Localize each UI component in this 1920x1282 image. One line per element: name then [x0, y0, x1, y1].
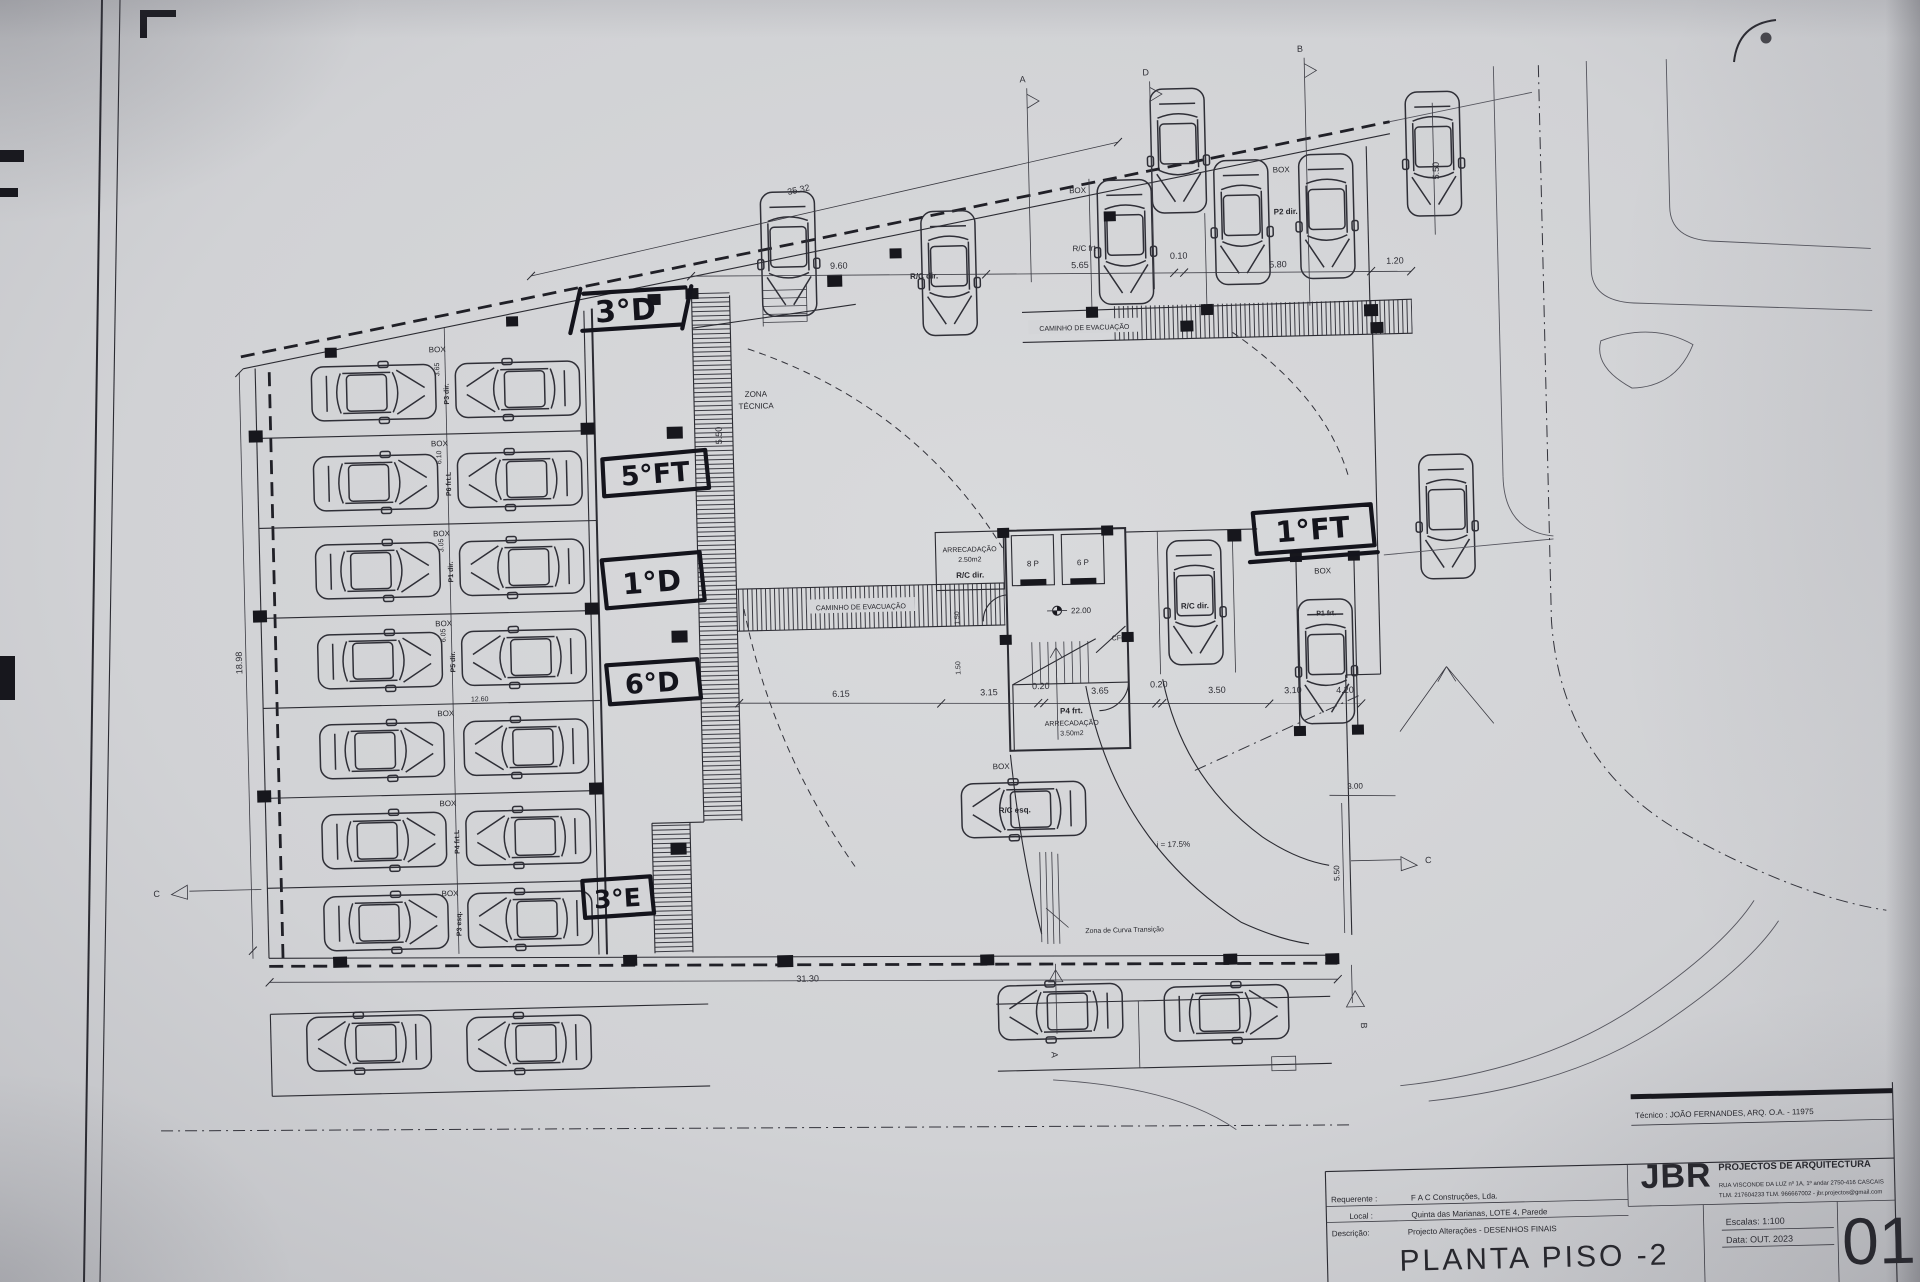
parking-plate: P1 dir.	[448, 561, 455, 582]
parking-plate: P2 dir.	[1274, 207, 1298, 217]
level-label: 22.00	[1071, 606, 1092, 615]
car-icon	[467, 887, 592, 952]
dimension-label: 3.15	[980, 687, 998, 697]
box-label: BOX	[993, 762, 1011, 771]
storage-area-label: 3.50m2	[1060, 730, 1084, 738]
car-icon	[998, 979, 1123, 1044]
local-label: Local :	[1349, 1211, 1373, 1221]
box-label: BOX	[437, 709, 455, 718]
car-icon	[315, 538, 440, 603]
dimension-label: 1.20	[1386, 255, 1404, 265]
handwritten-note: 5°FT	[602, 450, 709, 496]
unit-label: R/C dir.	[956, 570, 984, 580]
requerente-value: F A C Construções, Lda.	[1411, 1191, 1498, 1202]
dimension-label: 9.60	[830, 261, 848, 271]
descricao-label: Descrição:	[1332, 1228, 1370, 1238]
escape-corridors: CAMINHO DE EVACUAÇÃO CAMINHO DE EVACUAÇÃ…	[639, 273, 1426, 953]
car-icon	[1294, 599, 1359, 724]
box-label: BOX	[433, 529, 451, 538]
box-label: BOX	[1314, 566, 1332, 575]
dimension-label: 3.50	[1208, 685, 1226, 695]
dimension-label: 35.32	[786, 182, 810, 197]
dimension-label: 5.50	[1332, 865, 1341, 881]
box-label: BOX	[441, 889, 459, 898]
box-label: BOX	[431, 439, 449, 448]
requerente-label: Requerente :	[1331, 1194, 1377, 1204]
box-label: BOX	[439, 799, 457, 808]
dimension-label: 31.30	[796, 973, 819, 984]
dimension-label: 6.15	[832, 689, 850, 699]
left-parking-block: BOX BOX BOX BOX BOX BOX BOX P3 dir. P6 f…	[254, 309, 607, 963]
parking-plate: P4 frt.	[1060, 706, 1083, 716]
handwritten-note: 1°D	[602, 552, 705, 608]
data-value: Data: OUT. 2023	[1726, 1234, 1793, 1246]
handwritten-note: 3°D	[569, 286, 692, 333]
svg-text:6°D: 6°D	[624, 667, 680, 701]
dimension-label: 3.65	[1091, 685, 1109, 695]
sheet-number: 01	[1841, 1203, 1916, 1279]
scanned-floor-plan-photo: BOX BOX BOX BOX BOX BOX BOX P3 dir. P6 f…	[0, 0, 1920, 1282]
box-label: BOX	[1273, 165, 1291, 174]
svg-text:3°E: 3°E	[593, 883, 642, 915]
car-icon	[324, 890, 449, 955]
dimension-label: 5.65	[1071, 260, 1089, 270]
svg-text:1°FT: 1°FT	[1274, 510, 1351, 550]
tecnico-line: Técnico : JOÃO FERNANDES, ARQ. O.A. - 11…	[1635, 1107, 1814, 1120]
dimension-label: 0.10	[1170, 251, 1188, 261]
zona-tecnica-label: ZONA	[745, 389, 768, 399]
elevator-label: 8 P	[1027, 559, 1039, 568]
car-icon	[455, 357, 580, 422]
handwritten-note: 1°FT	[1249, 504, 1378, 562]
car-icon	[322, 808, 447, 873]
floor-plan-drawing: BOX BOX BOX BOX BOX BOX BOX P3 dir. P6 f…	[0, 0, 1920, 1282]
zona-tecnica-label: TÉCNICA	[738, 401, 774, 411]
car-icon	[1414, 454, 1479, 579]
unit-label: R/C esq.	[999, 805, 1031, 815]
car-icon	[306, 1011, 431, 1076]
car-icon	[459, 535, 584, 600]
dimension-label: 18.98	[234, 652, 245, 675]
box-label: BOX	[429, 345, 447, 354]
dimension-label: 5.50	[1431, 162, 1441, 180]
car-icon	[1294, 154, 1359, 279]
drawing-title: PLANTA PISO -2	[1399, 1238, 1670, 1277]
elevator-label: 6 P	[1077, 558, 1089, 567]
storage-area-label: 2.50m2	[958, 556, 982, 564]
dimension-label: 3.65	[434, 362, 441, 376]
parking-plate: P3 dir.	[444, 383, 451, 404]
car-icon	[1210, 160, 1275, 285]
parking-plate: P3 esq.	[456, 911, 464, 936]
parking-plate: P6 frt.L	[446, 471, 454, 496]
dimension-label: 5.80	[1269, 259, 1287, 269]
section-letter: D	[1142, 67, 1149, 77]
handwritten-note: 6°D	[606, 659, 701, 704]
dimension-label: 0.20	[1150, 679, 1168, 689]
dimension-label: 5.50	[714, 427, 724, 445]
section-letter: C	[153, 889, 160, 899]
escalas-value: Escalas: 1:100	[1726, 1216, 1785, 1227]
box-label: BOX	[1069, 186, 1087, 195]
dimension-label: 6.05	[440, 628, 447, 642]
unit-label: R/C frt	[1072, 244, 1096, 254]
storage-label: ARRECADAÇÃO	[942, 544, 997, 554]
plan-sheet: BOX BOX BOX BOX BOX BOX BOX P3 dir. P6 f…	[134, 30, 1916, 1282]
car-icon	[457, 447, 582, 512]
handwritten-note: 3°E	[582, 876, 654, 918]
descricao-value: Projecto Alterações - DESENHOS FINAIS	[1408, 1224, 1557, 1237]
dimension-label: 0.20	[1032, 681, 1050, 691]
parking-plate: P4 frt.L	[454, 829, 462, 854]
building-core: ARRECADAÇÃO 2.50m2 R/C dir. 8 P 6 P 22.0…	[935, 528, 1133, 816]
section-letter: A	[1049, 1052, 1059, 1058]
car-icon	[461, 625, 586, 690]
firm-contacts: TLM. 217604233 TLM. 966667002 - jbr.proj…	[1719, 1189, 1883, 1199]
slope-label: i = 17.5%	[1156, 840, 1190, 850]
unit-label: R/C dir.	[910, 271, 938, 281]
punch-hole-icon	[1761, 33, 1772, 44]
svg-text:3°D: 3°D	[594, 292, 657, 330]
dimension-label: 12.60	[471, 696, 489, 703]
dimension-label: 3.05	[438, 538, 445, 552]
section-letter: B	[1297, 44, 1303, 54]
car-icon	[317, 628, 442, 693]
section-letter: B	[1359, 1022, 1369, 1028]
dimensions: 35.32 9.60 5.65 0.10 5.80 1.20 18.98 6.1…	[222, 103, 1460, 1009]
car-icon	[311, 360, 436, 425]
streets	[137, 54, 1891, 1152]
dimension-label: 3.10	[1284, 685, 1302, 695]
car-icon	[319, 718, 444, 783]
car-icon	[466, 805, 591, 870]
svg-text:5°FT: 5°FT	[620, 456, 692, 492]
section-markers: A D B C C A B	[134, 41, 1436, 1079]
parking-plate: P1 frt.	[1316, 610, 1336, 617]
dimension-label: 3.00	[1347, 782, 1363, 791]
firm-address: RUA VISCONDE DA LUZ nº 1A, 1º andar 2750…	[1719, 1178, 1884, 1189]
dimension-label: 1.50	[954, 611, 961, 625]
dimension-label: 6.10	[436, 450, 443, 464]
box-label: BOX	[435, 619, 453, 628]
firm-logo: JBR	[1640, 1156, 1712, 1196]
car-icon	[313, 450, 438, 515]
storage-label: ARRECADAÇÃO	[1045, 718, 1100, 728]
svg-text:1°D: 1°D	[621, 563, 682, 601]
parking-plate: P5 dir.	[450, 651, 457, 672]
curve-zone-label: Zona de Curva Transição	[1085, 926, 1164, 935]
firm-name: PROJECTOS DE ARQUITECTURA	[1718, 1159, 1871, 1174]
section-letter: C	[1425, 855, 1432, 865]
dimension-label: 4.20	[1336, 685, 1354, 695]
car-icon	[1093, 179, 1158, 304]
unit-label: R/C dir.	[1181, 601, 1209, 611]
dimension-label: 1.50	[955, 661, 962, 675]
car-icon	[466, 1011, 591, 1076]
section-letter: A	[1019, 74, 1025, 84]
car-icon	[1164, 980, 1289, 1045]
paper-edge-marks	[0, 0, 1776, 1282]
title-block: Técnico : JOÃO FERNANDES, ARQ. O.A. - 11…	[1324, 1082, 1917, 1282]
car-icon	[1146, 88, 1211, 213]
car-icon	[463, 715, 588, 780]
